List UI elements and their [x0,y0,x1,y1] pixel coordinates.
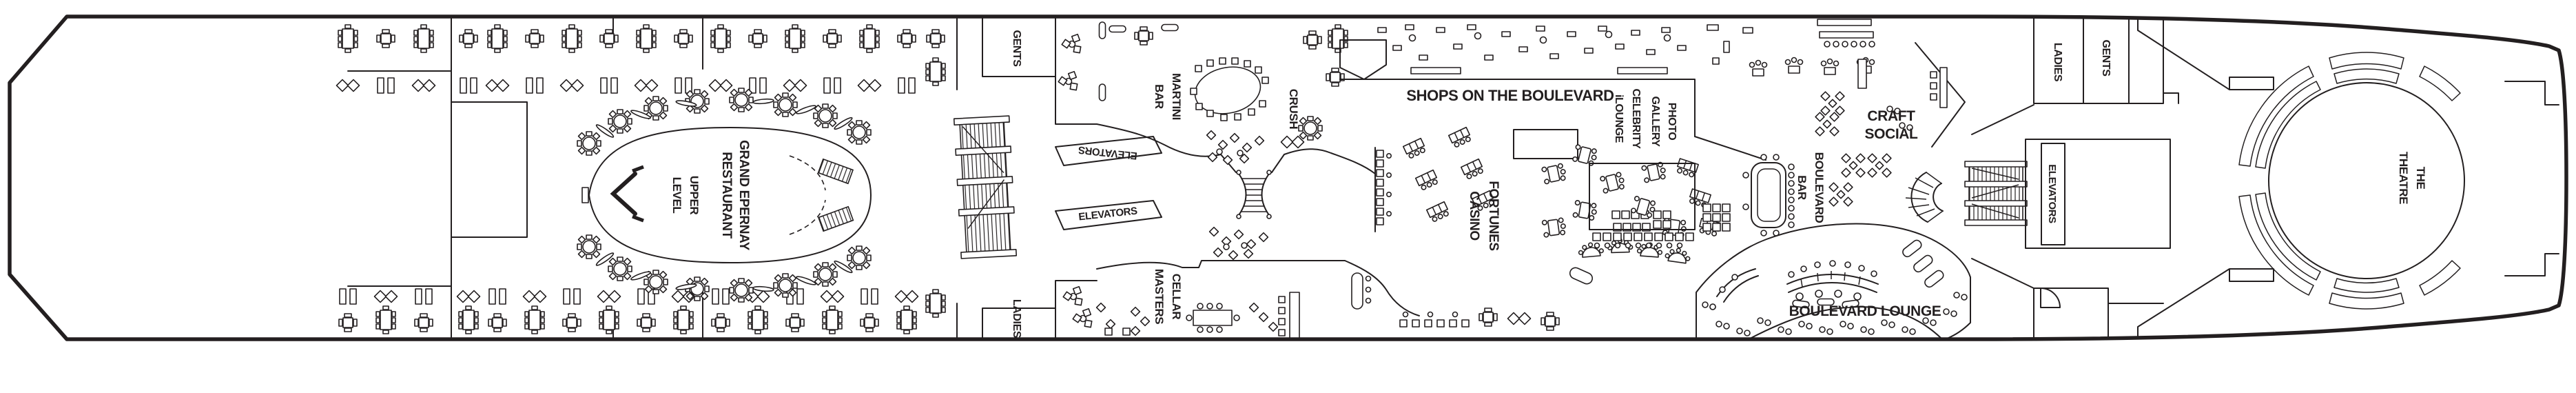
deck-plan-svg: GRAND EPERNAY RESTAURANT UPPER LEVEL GEN… [0,0,2576,393]
upper-level-label-line2: LEVEL [670,177,683,214]
cellar-masters-label-line1: CELLAR [1170,274,1183,320]
ladies-fwd-label: LADIES [2052,43,2063,82]
grand-epernay-label-line2: RESTAURANT [719,152,734,239]
crush-label: CRUSH [1287,89,1300,130]
celebrity-ilounge-label-line2: iLOUNGE [1613,94,1625,143]
craft-social-label-line2: SOCIAL [1865,126,1919,142]
the-theatre-label-line1: THE [2414,167,2427,190]
gents-fwd-label: GENTS [2100,39,2112,77]
upper-level-label-line1: UPPER [688,176,701,215]
forward-grand-staircase [1965,161,2027,225]
martini-bar-label-line1: MARTINI [1170,73,1183,120]
fortunes-casino-label-line1: FORTUNES [1486,181,1501,250]
the-theatre-label-line2: THEATRE [2397,152,2410,204]
elevators-fwd-label: ELEVATORS [2046,164,2058,223]
celebrity-ilounge-label-line1: CELEBRITY [1630,88,1642,149]
fortunes-casino-label-line2: CASINO [1467,191,1481,241]
boulevard-lounge-label: BOULEVARD LOUNGE [1789,303,1941,319]
ladies-aft-label: LADIES [1011,299,1022,339]
deck-plan-page: GRAND EPERNAY RESTAURANT UPPER LEVEL GEN… [0,0,2576,393]
martini-bar-label-line2: BAR [1153,84,1166,109]
gents-aft-label: GENTS [1011,30,1022,67]
grand-epernay-label-line1: GRAND EPERNAY [736,140,751,251]
cellar-masters-label-line2: MASTERS [1153,269,1166,324]
shops-on-the-boulevard-label: SHOPS ON THE BOULEVARD [1406,87,1614,104]
boulevard-bar-label-line1: BOULEVARD [1813,152,1826,223]
photo-gallery-label-line1: PHOTO [1666,103,1678,141]
boulevard-bar-label-line2: BAR [1795,175,1809,200]
craft-social-label-line1: CRAFT [1867,108,1915,124]
ship-hull-outline [10,17,2566,339]
photo-gallery-label-line2: GALLERY [1649,96,1661,147]
